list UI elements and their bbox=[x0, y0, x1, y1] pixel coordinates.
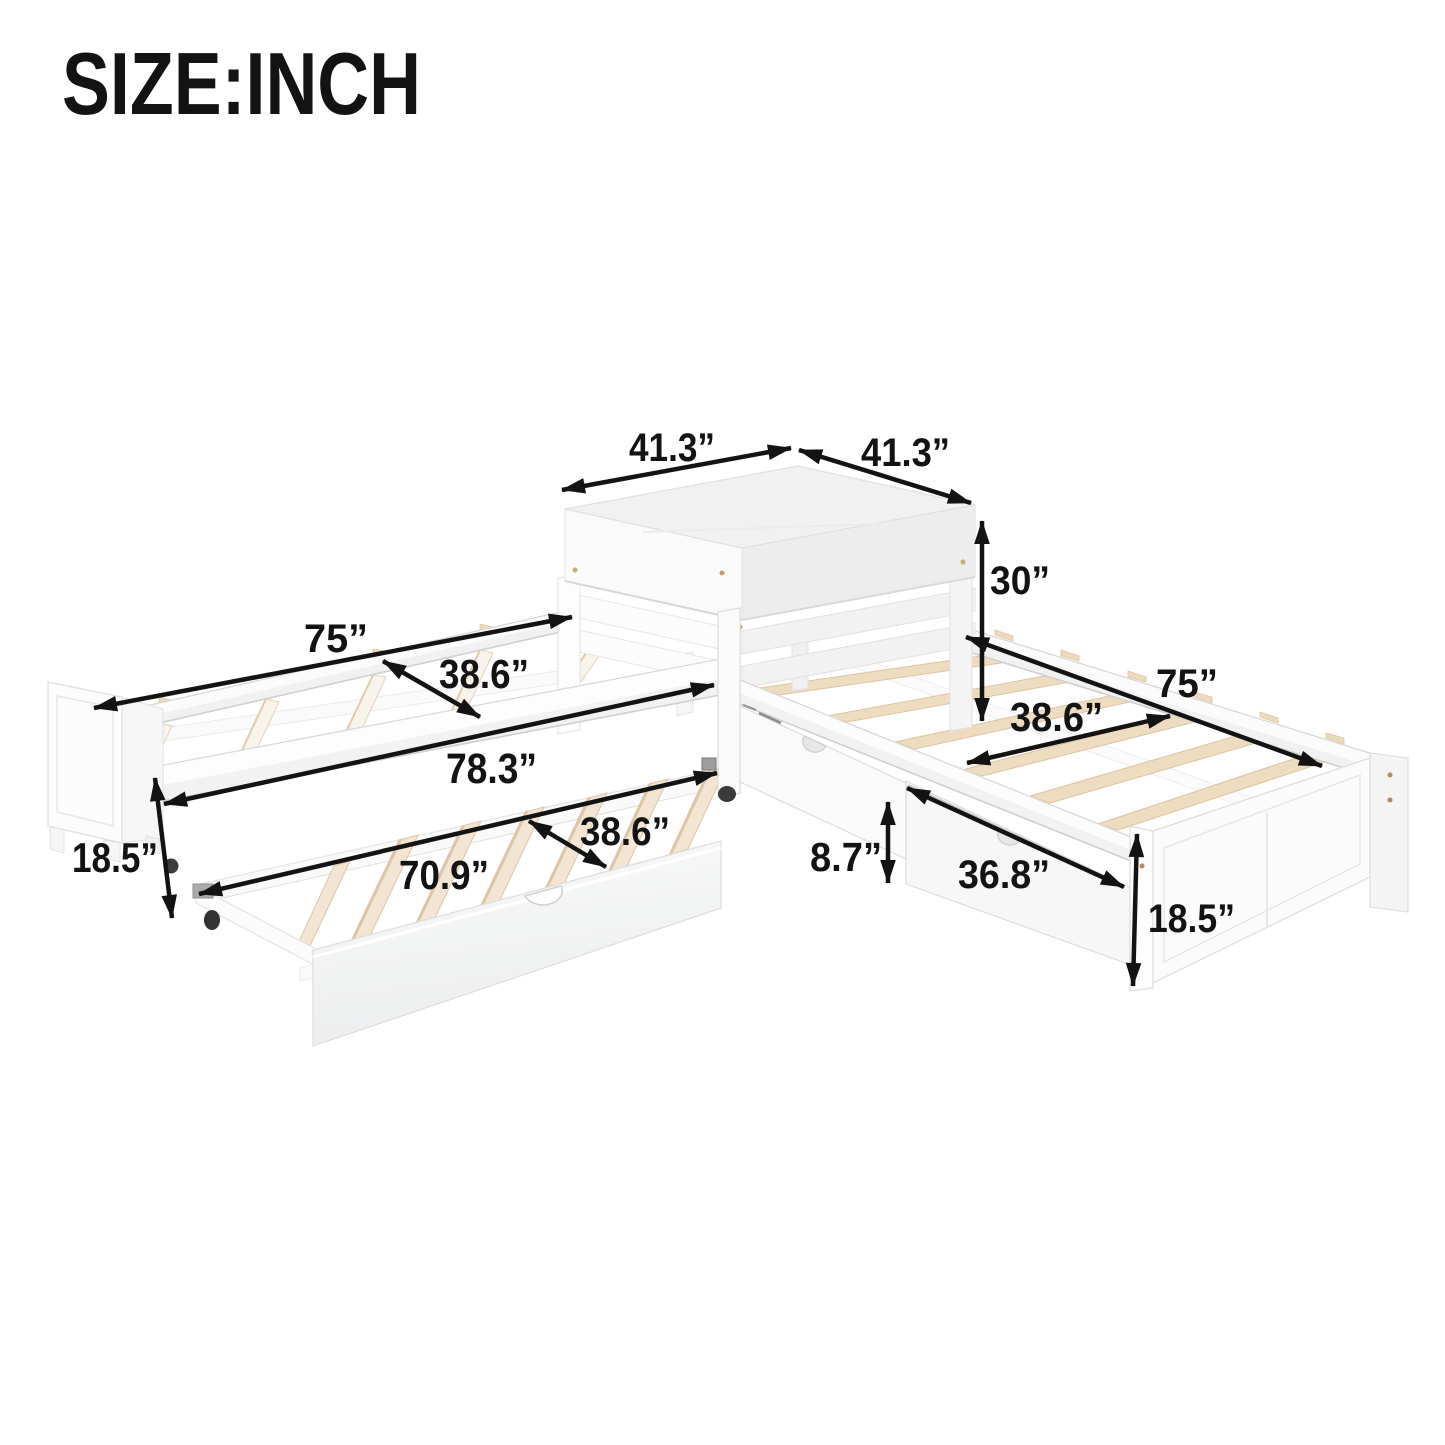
svg-text:SIZE:INCH: SIZE:INCH bbox=[62, 34, 421, 133]
svg-text:8.7”: 8.7” bbox=[810, 834, 882, 880]
svg-text:38.6”: 38.6” bbox=[1010, 694, 1103, 740]
svg-text:75”: 75” bbox=[304, 617, 368, 661]
svg-text:36.8”: 36.8” bbox=[958, 853, 1050, 897]
svg-text:38.6”: 38.6” bbox=[439, 651, 529, 697]
svg-text:18.5”: 18.5” bbox=[72, 834, 158, 881]
svg-text:41.3”: 41.3” bbox=[861, 431, 950, 475]
svg-text:30”: 30” bbox=[990, 559, 1050, 603]
svg-text:18.5”: 18.5” bbox=[1148, 897, 1235, 941]
svg-text:38.6”: 38.6” bbox=[580, 810, 670, 854]
svg-text:41.3”: 41.3” bbox=[629, 426, 715, 470]
svg-text:70.9”: 70.9” bbox=[399, 852, 489, 898]
svg-text:75”: 75” bbox=[1156, 662, 1218, 706]
svg-text:78.3”: 78.3” bbox=[446, 745, 537, 793]
